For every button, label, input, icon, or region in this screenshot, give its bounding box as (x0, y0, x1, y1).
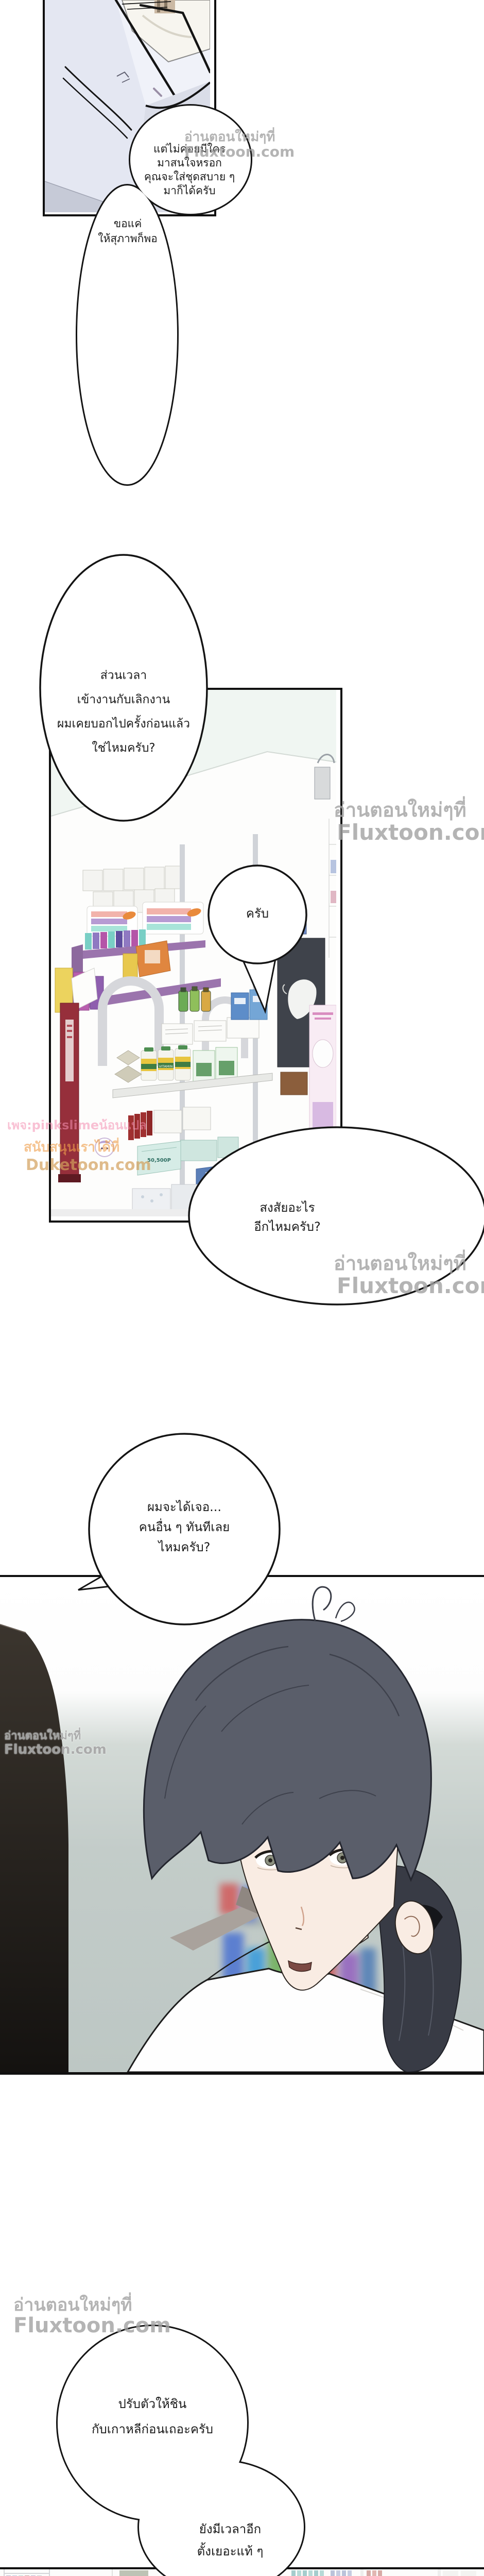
translator-watermark-line3: Duketoon.com (26, 1156, 151, 1174)
site-watermark-2: อ่านตอนใหม่ๆที่ Fluxtoon.com (334, 800, 484, 844)
speech-text-b6: ผมจะได้เจอ... คนอื่น ๆ ทันทีเลย ไหมครับ? (124, 1497, 245, 1557)
translator-watermark-line1: เพจ:pinkslimeน้อนแปล (7, 1115, 147, 1135)
speech-text-b2: ขอแค่ ให้สุภาพก็พอ (78, 216, 177, 246)
speech-text-b5: สงสัยอะไร อีกไหมครับ? (230, 1198, 345, 1236)
mask-poster (309, 1005, 336, 1139)
character-artwork (0, 1577, 484, 2072)
vitamin-label: VITAMIN (159, 1064, 173, 1069)
panel-character (0, 1575, 484, 2075)
speech-text-b3: ส่วนเวลา เข้างานกับเลิกงาน ผมเคยบอกไปครั… (40, 664, 207, 760)
site-watermark-4: อ่านตอนใหม่ๆที่ Fluxtoon.com (4, 1730, 107, 1757)
speech-text-b7: ปรับตัวให้ชิน กับเกาหลีก่อนเถอะครับ (75, 2392, 230, 2442)
webtoon-page: VITAMIN (0, 0, 484, 2576)
site-watermark-5: อ่านตอนใหม่ๆที่ Fluxtoon.com (13, 2296, 171, 2337)
speech-text-b4: ครับ (221, 906, 293, 921)
speech-text-b8: ยังมีเวลาอีก ตั้งเยอะแท้ ๆ (171, 2518, 289, 2563)
speech-bubble-4 (201, 859, 288, 1014)
site-watermark-1: อ่านตอนใหม่ๆที่ Fluxtoon.com (184, 130, 295, 160)
site-watermark-3: อ่านตอนใหม่ๆที่ Fluxtoon.com (334, 1253, 484, 1297)
translator-watermark-line2: สนับสนุนเราได้ที่ (24, 1137, 119, 1158)
